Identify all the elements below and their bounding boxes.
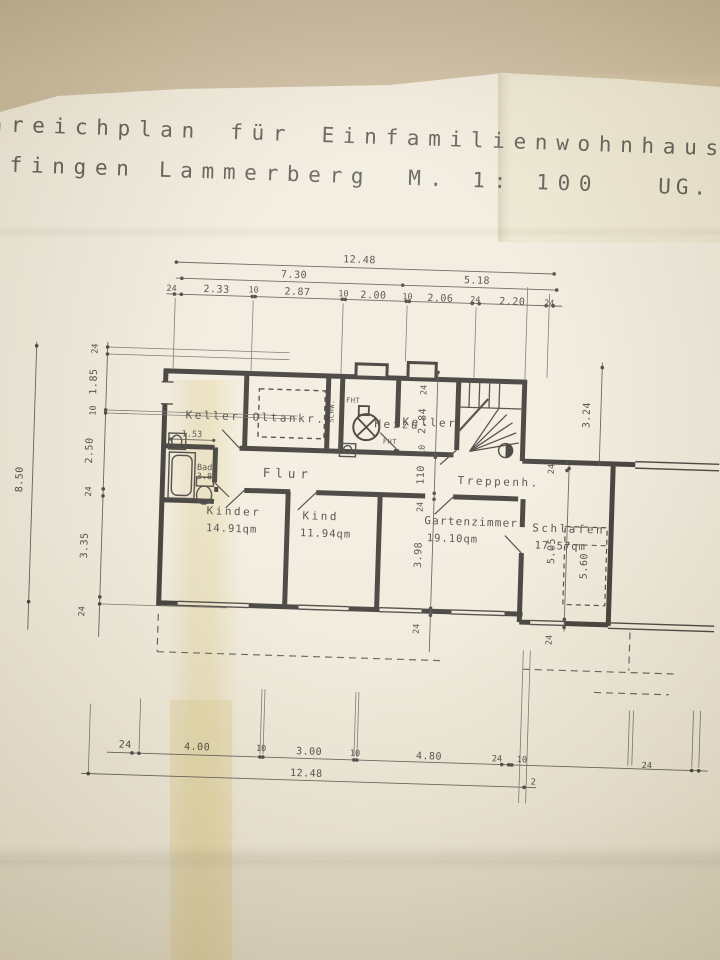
photo-of-floor-plan: { "title": { "line1": "nreichplan für Ei…: [0, 0, 720, 960]
photo-vignette: [0, 0, 720, 960]
